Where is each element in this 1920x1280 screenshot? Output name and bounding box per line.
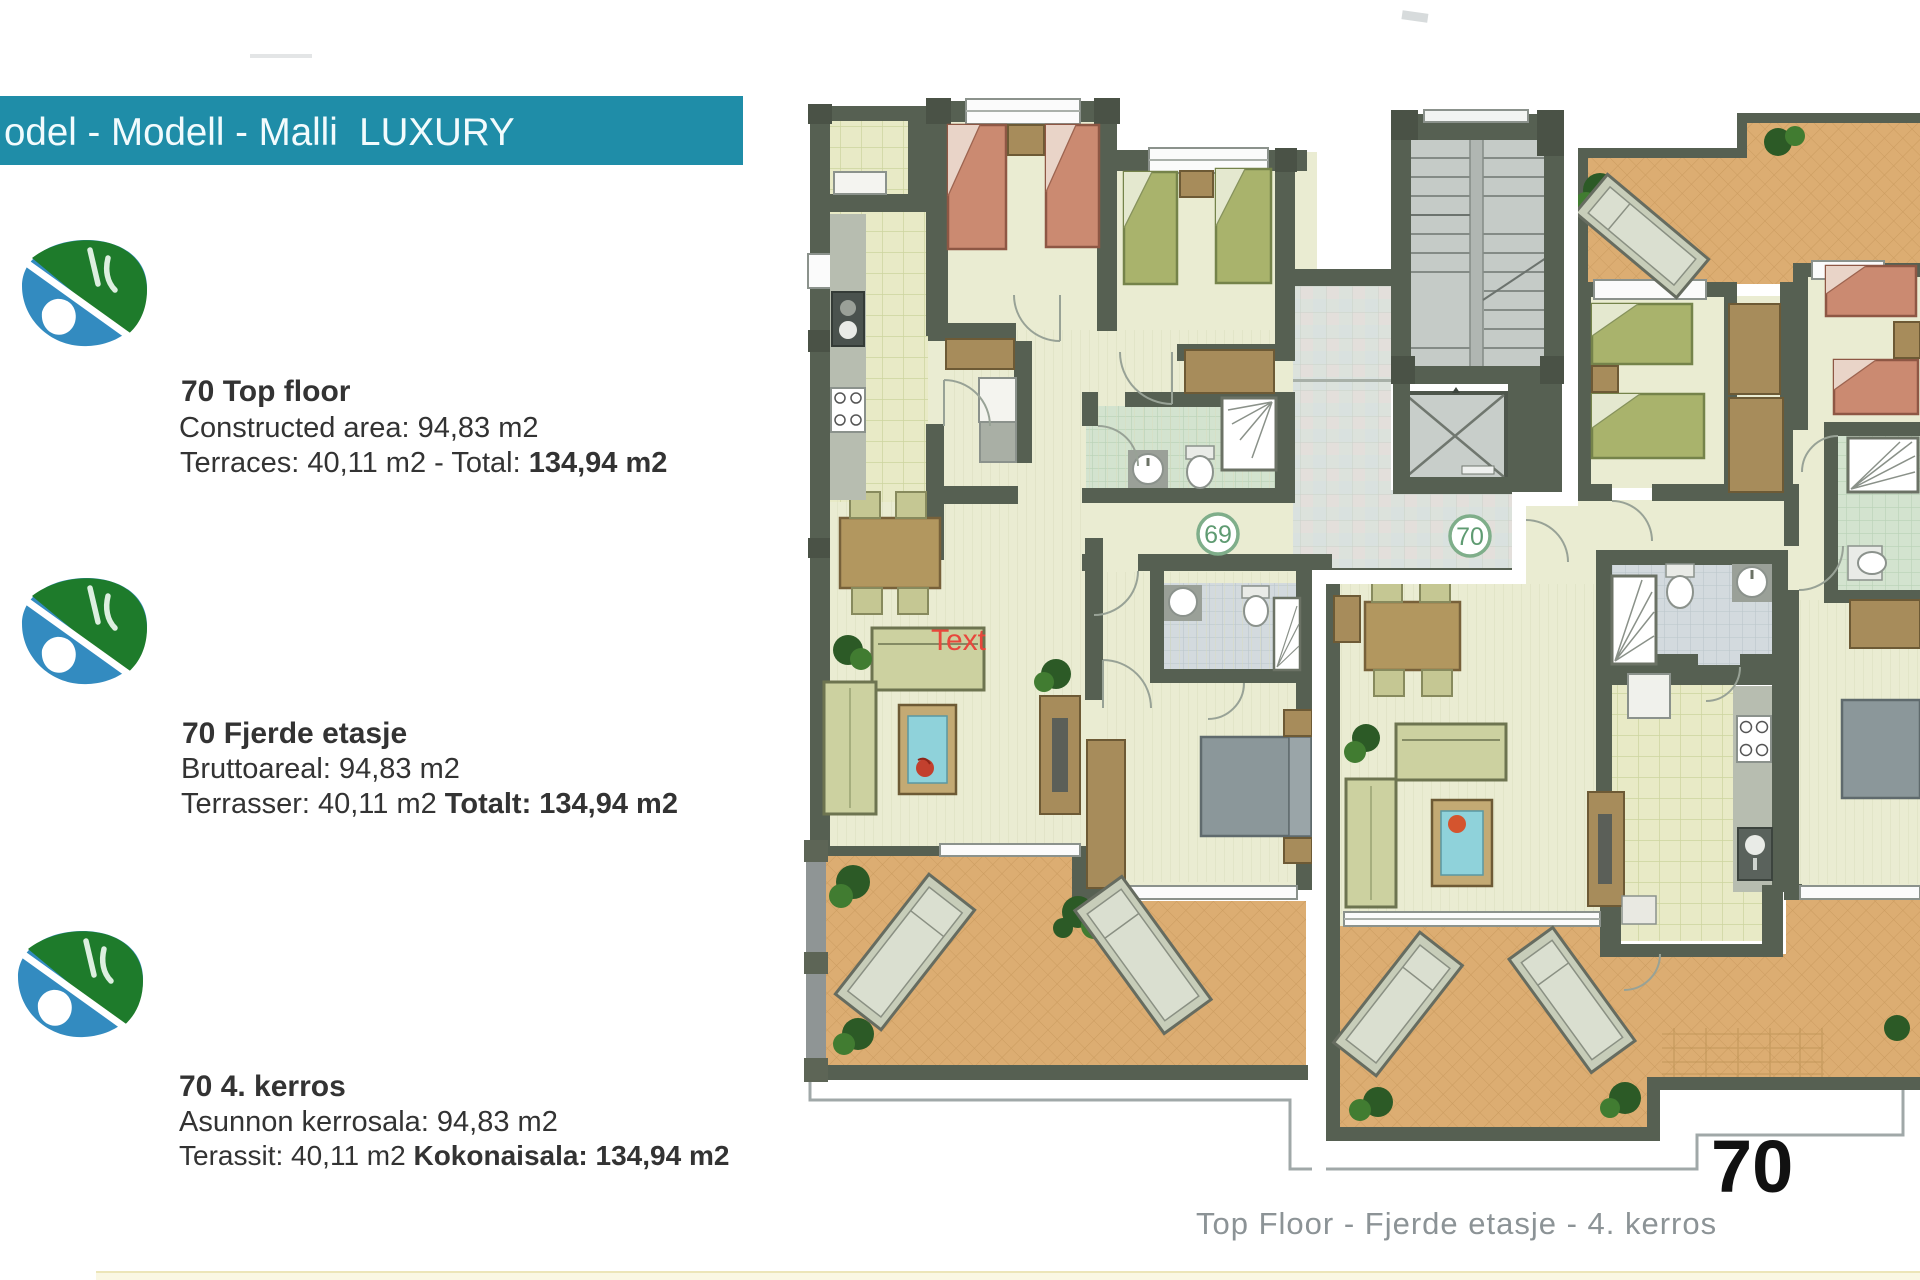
svg-text:Terrasser: 40,11 m2 Totalt: 13: Terrasser: 40,11 m2 Totalt: 134,94 m2 — [181, 788, 678, 820]
svg-text:70: 70 — [1456, 523, 1484, 551]
svg-text:Text: Text — [931, 624, 987, 657]
svg-text:70: 70 — [1711, 1125, 1793, 1208]
svg-text:69: 69 — [1204, 521, 1232, 549]
svg-text:Asunnon kerrosala: 94,83 m2: Asunnon kerrosala: 94,83 m2 — [179, 1106, 558, 1138]
svg-text:Terassit: 40,11 m2 Kokonaisala: Terassit: 40,11 m2 Kokonaisala: 134,94 m… — [179, 1140, 729, 1171]
svg-text:Terraces: 40,11 m2 - Total: 13: Terraces: 40,11 m2 - Total: 134,94 m2 — [180, 447, 667, 479]
svg-text:70 Top floor: 70 Top floor — [181, 375, 351, 408]
svg-text:Constructed area: 94,83 m2: Constructed area: 94,83 m2 — [179, 412, 538, 444]
svg-text:70 Fjerde etasje: 70 Fjerde etasje — [182, 717, 407, 750]
svg-text:Top Floor - Fjerde etasje - 4.: Top Floor - Fjerde etasje - 4. kerros — [1196, 1206, 1717, 1241]
svg-text:Bruttoareal: 94,83 m2: Bruttoareal: 94,83 m2 — [181, 753, 460, 785]
svg-text:70 4. kerros: 70 4. kerros — [179, 1070, 346, 1103]
svg-text:odel - Modell - Malli LUXURY: odel - Modell - Malli LUXURY — [4, 111, 515, 154]
